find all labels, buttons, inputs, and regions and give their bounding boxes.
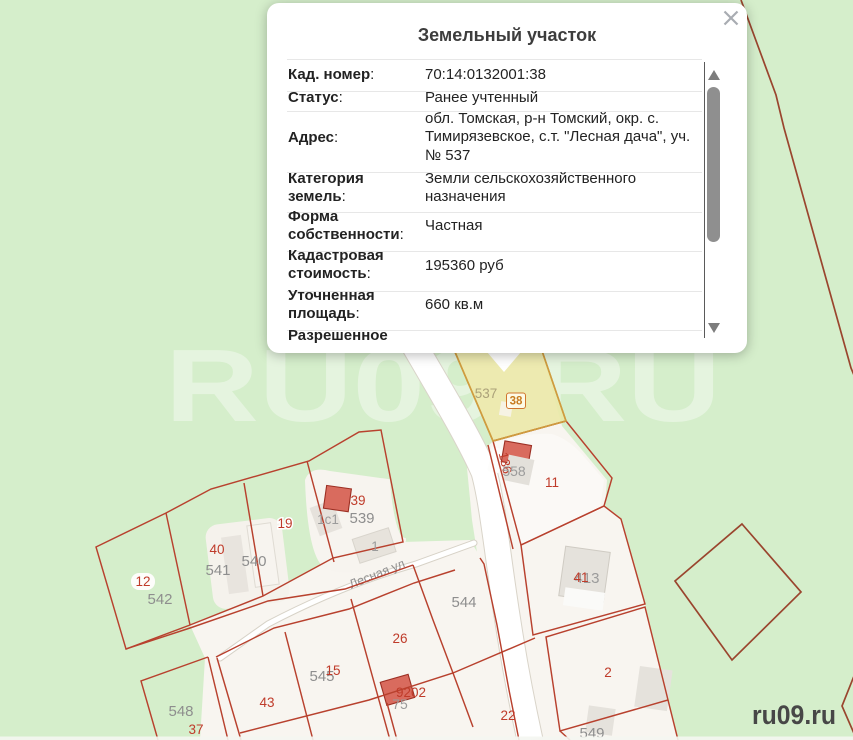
svg-text:2: 2 — [604, 665, 612, 680]
svg-text:539: 539 — [349, 510, 374, 527]
svg-text:11: 11 — [545, 475, 559, 490]
svg-text:22: 22 — [500, 708, 515, 723]
svg-text:37: 37 — [188, 722, 203, 737]
svg-text:542: 542 — [147, 591, 172, 608]
svg-text:544: 544 — [451, 594, 476, 611]
svg-text:537: 537 — [475, 386, 498, 401]
svg-text:15: 15 — [325, 663, 340, 678]
svg-text:39: 39 — [350, 493, 365, 508]
svg-text:558: 558 — [502, 463, 526, 479]
svg-text:43: 43 — [259, 695, 274, 710]
svg-text:12: 12 — [135, 574, 150, 589]
svg-text:19: 19 — [277, 516, 292, 531]
svg-text:41: 41 — [573, 570, 588, 585]
svg-text:548: 548 — [168, 703, 193, 720]
svg-text:40: 40 — [209, 542, 224, 557]
svg-text:540: 540 — [241, 553, 266, 570]
svg-text:75: 75 — [392, 696, 408, 712]
svg-text:1с1: 1с1 — [317, 512, 339, 527]
svg-text:1: 1 — [371, 539, 379, 554]
svg-text:ru09.ru: ru09.ru — [752, 700, 836, 730]
svg-text:38: 38 — [510, 396, 523, 408]
svg-text:26: 26 — [392, 631, 407, 646]
svg-text:541: 541 — [205, 562, 230, 579]
